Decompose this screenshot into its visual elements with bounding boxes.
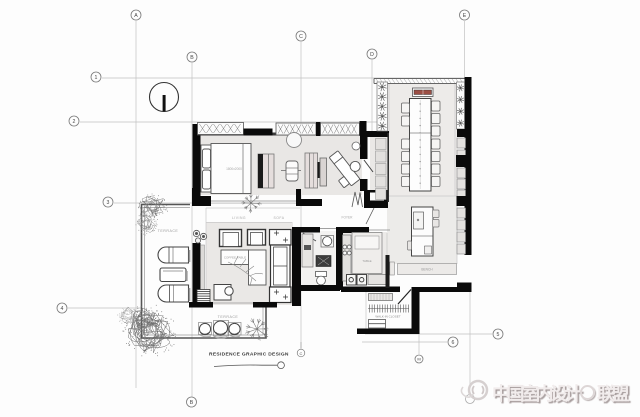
svg-text:COFFEE TABLE: COFFEE TABLE [224, 256, 246, 260]
svg-text:E: E [463, 13, 467, 19]
svg-text:BENCH: BENCH [421, 268, 433, 272]
svg-text:C: C [300, 351, 303, 356]
svg-text:TERRACE: TERRACE [158, 229, 179, 233]
svg-text:TABLE: TABLE [362, 259, 371, 263]
svg-text:LIVING: LIVING [232, 216, 246, 220]
svg-text:6: 6 [452, 340, 455, 346]
svg-text:WALK-IN CLOSET: WALK-IN CLOSET [375, 315, 400, 319]
svg-text:3: 3 [107, 200, 110, 206]
svg-text:C: C [299, 34, 303, 40]
svg-text:1: 1 [95, 75, 98, 81]
svg-text:D: D [370, 52, 374, 58]
svg-text:TERRACE: TERRACE [218, 315, 239, 319]
svg-text:FOYER: FOYER [342, 216, 354, 220]
svg-text:A: A [134, 13, 138, 19]
svg-text:B: B [190, 400, 194, 406]
svg-text:5: 5 [497, 332, 500, 338]
svg-text:M: M [417, 356, 420, 361]
svg-text:RESIDENCE GRAPHIC DESIGN: RESIDENCE GRAPHIC DESIGN [209, 352, 289, 358]
svg-text:4: 4 [61, 306, 64, 312]
svg-text:B: B [190, 55, 194, 61]
svg-text:SOFA: SOFA [273, 216, 284, 220]
svg-text:1800x2000: 1800x2000 [226, 167, 242, 171]
svg-text:2: 2 [73, 119, 76, 125]
